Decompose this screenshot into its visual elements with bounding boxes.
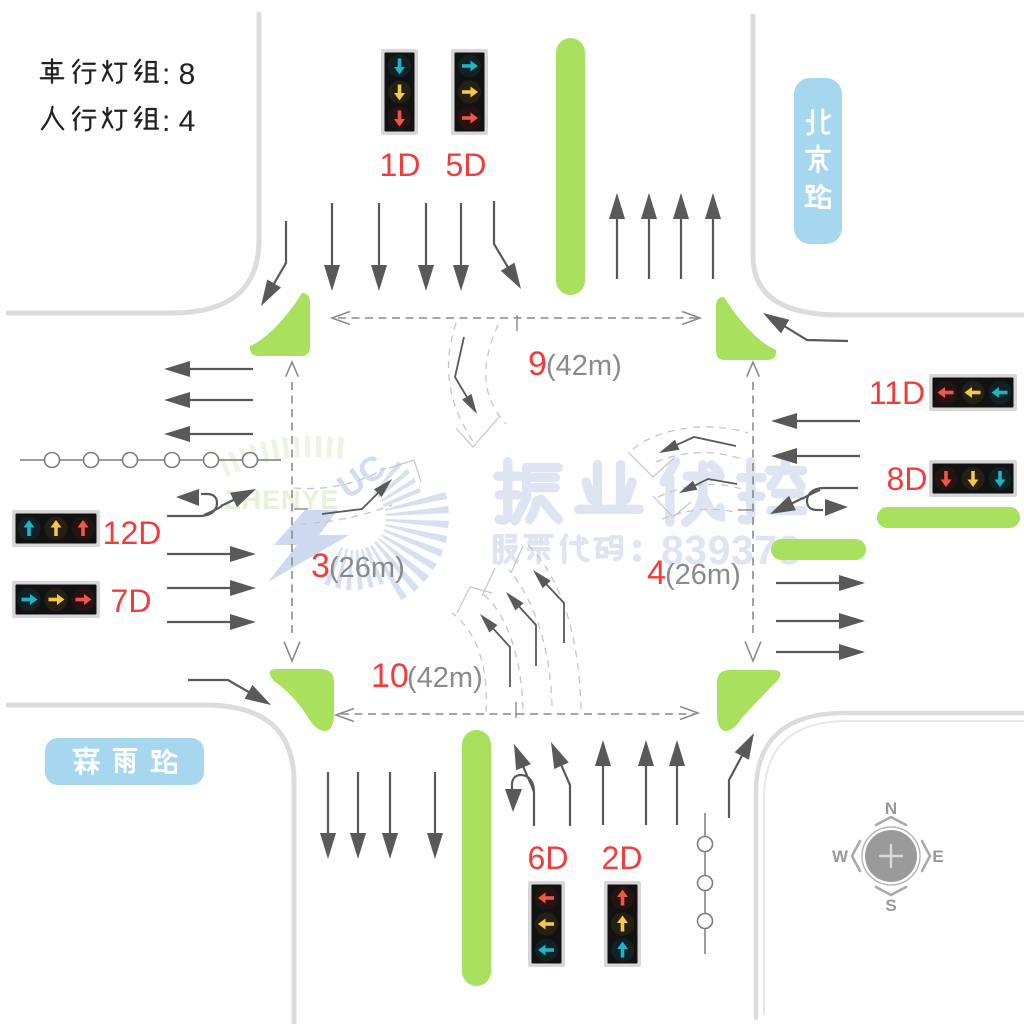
svg-text:N: N bbox=[885, 799, 897, 818]
svg-text:: 4: : 4 bbox=[162, 105, 195, 138]
svg-text:9: 9 bbox=[528, 345, 547, 383]
svg-text:(42m): (42m) bbox=[407, 662, 483, 694]
svg-text:1D: 1D bbox=[380, 147, 421, 183]
svg-text:W: W bbox=[832, 847, 849, 866]
svg-text:3: 3 bbox=[311, 547, 330, 585]
svg-text:11D: 11D bbox=[869, 375, 925, 411]
svg-text:S: S bbox=[885, 896, 896, 915]
svg-text:4: 4 bbox=[647, 554, 666, 592]
svg-text:2D: 2D bbox=[602, 840, 643, 876]
svg-text:: 8: : 8 bbox=[162, 58, 195, 91]
svg-text:7D: 7D bbox=[111, 583, 152, 619]
svg-text:(26m): (26m) bbox=[329, 552, 405, 584]
svg-text:12D: 12D bbox=[103, 515, 162, 551]
svg-text:(26m): (26m) bbox=[665, 559, 741, 591]
svg-text:5D: 5D bbox=[446, 147, 487, 183]
svg-text:10: 10 bbox=[371, 657, 409, 695]
svg-text:E: E bbox=[932, 847, 943, 866]
svg-text:6D: 6D bbox=[528, 840, 569, 876]
svg-text:(42m): (42m) bbox=[546, 350, 622, 382]
svg-text:8D: 8D bbox=[887, 461, 928, 497]
